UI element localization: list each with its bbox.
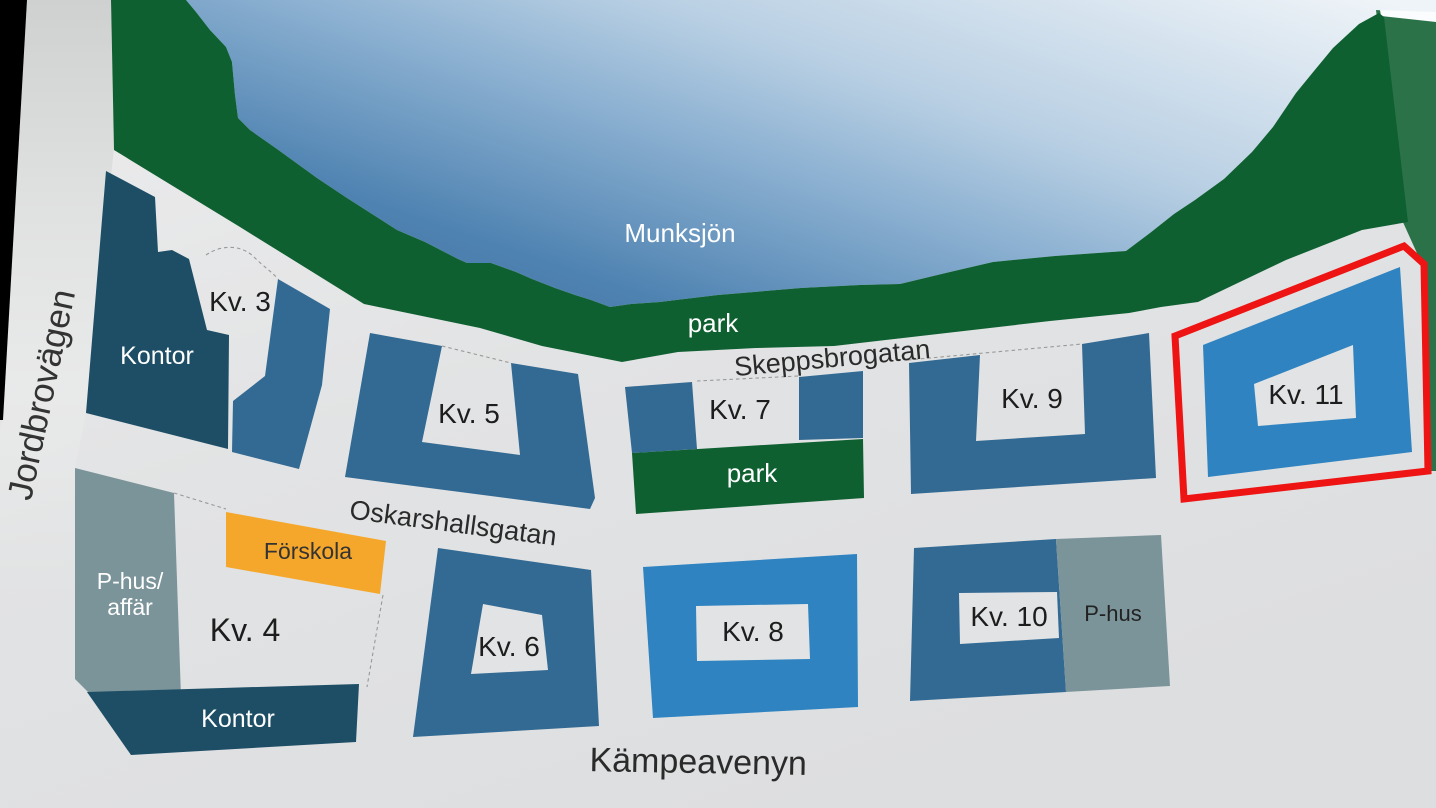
svg-text:park: park <box>727 458 779 488</box>
svg-text:Kämpeavenyn: Kämpeavenyn <box>589 741 807 783</box>
svg-text:Kv. 10: Kv. 10 <box>970 601 1047 632</box>
svg-text:P-hus/: P-hus/ <box>97 568 164 594</box>
svg-text:Kv. 5: Kv. 5 <box>438 398 500 429</box>
svg-text:Kv. 6: Kv. 6 <box>478 631 540 662</box>
svg-text:Kontor: Kontor <box>120 342 194 370</box>
svg-text:Kv. 11: Kv. 11 <box>1268 379 1343 410</box>
svg-text:Kv. 4: Kv. 4 <box>210 612 281 648</box>
svg-text:Kontor: Kontor <box>201 705 275 733</box>
svg-text:affär: affär <box>107 594 153 620</box>
svg-text:Förskola: Förskola <box>264 538 352 564</box>
svg-text:P-hus: P-hus <box>1084 601 1141 626</box>
svg-text:Kv. 8: Kv. 8 <box>722 616 784 647</box>
svg-text:Kv. 7: Kv. 7 <box>709 394 771 425</box>
svg-text:park: park <box>688 308 740 338</box>
svg-text:Munksjön: Munksjön <box>624 218 735 248</box>
svg-text:Kv. 9: Kv. 9 <box>1001 383 1063 414</box>
svg-text:Kv. 3: Kv. 3 <box>209 286 271 317</box>
